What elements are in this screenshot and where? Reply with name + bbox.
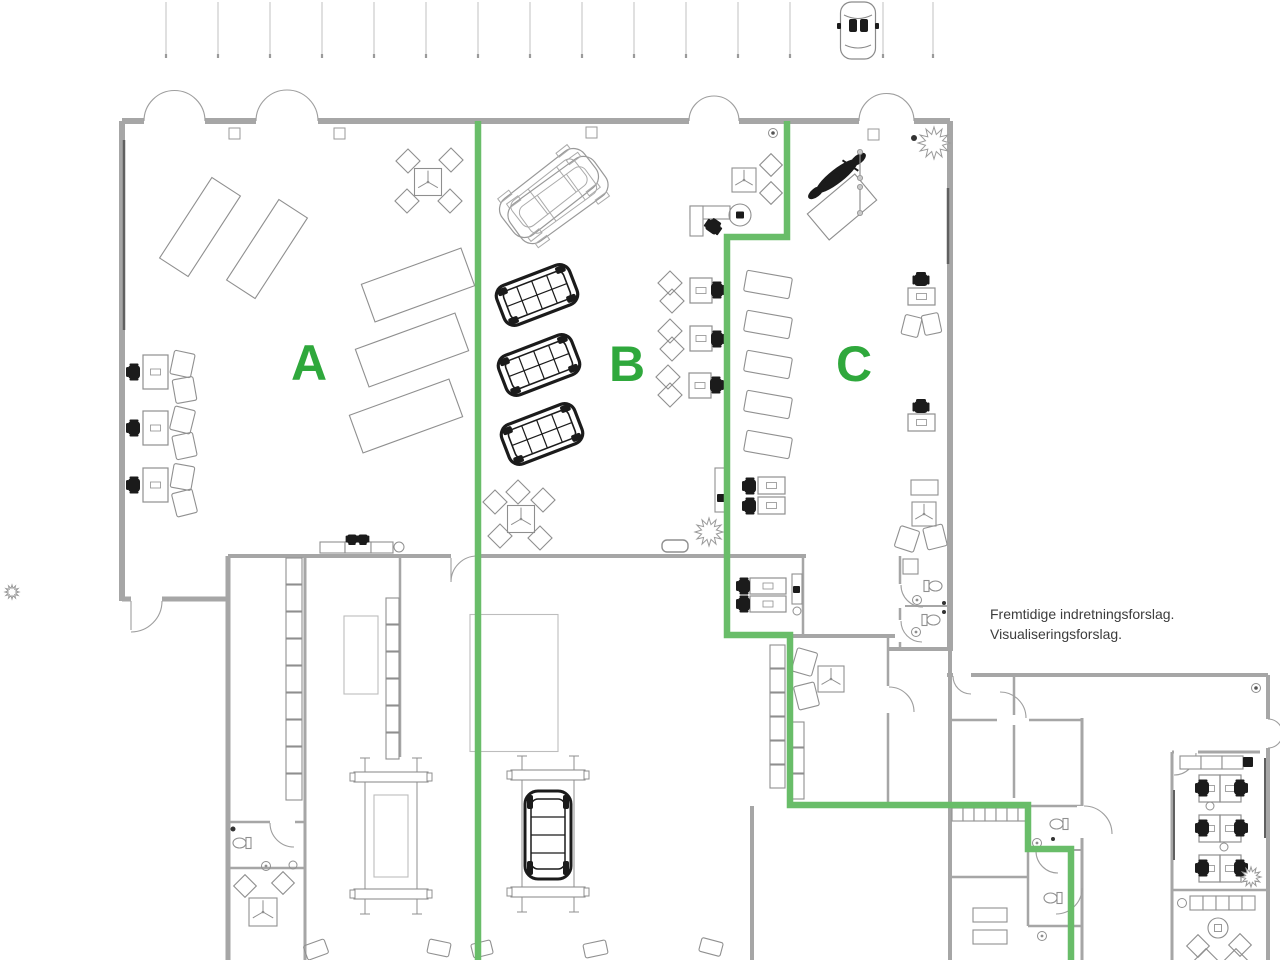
car-outline-icon bbox=[491, 140, 606, 247]
meeting-table-icon bbox=[912, 502, 936, 526]
chair-icon bbox=[439, 148, 463, 172]
cabinet-icon bbox=[386, 625, 399, 651]
cabinet-icon bbox=[973, 908, 1007, 922]
chair-icon bbox=[760, 154, 783, 177]
cabinet-icon bbox=[1222, 756, 1243, 769]
stool-icon bbox=[1178, 899, 1187, 908]
parking-area bbox=[166, 2, 933, 58]
cabinet-icon bbox=[286, 612, 302, 638]
cabinet-icon bbox=[952, 808, 963, 821]
desk-icon bbox=[143, 411, 168, 445]
sink-icon bbox=[1038, 932, 1047, 941]
display-platform bbox=[361, 248, 474, 322]
cabinet-icon bbox=[1203, 896, 1216, 910]
car-icon bbox=[493, 261, 581, 328]
small-plant-icon bbox=[769, 129, 778, 138]
parked-car-icon bbox=[837, 2, 879, 59]
cabinet-icon bbox=[770, 693, 785, 716]
cabinet-icon bbox=[985, 808, 996, 821]
zone-label-a: A bbox=[291, 334, 327, 392]
fixture-dot bbox=[942, 610, 946, 614]
cabinet-icon bbox=[286, 693, 302, 719]
desk-icon bbox=[908, 414, 935, 431]
office-chair-icon bbox=[126, 420, 140, 437]
cabinet-icon bbox=[386, 706, 399, 732]
lounge-chair-icon bbox=[744, 310, 793, 339]
office-chair-icon bbox=[742, 478, 756, 495]
cabinet-icon bbox=[386, 679, 399, 705]
display-platform bbox=[374, 795, 408, 877]
lounge-chair-icon bbox=[471, 940, 494, 958]
desk-icon bbox=[143, 468, 168, 502]
cabinet-icon bbox=[1201, 756, 1222, 769]
equipment-icon bbox=[1243, 757, 1253, 767]
fixture-dot bbox=[942, 601, 946, 605]
office-chair-icon bbox=[711, 282, 725, 299]
cabinet-icon bbox=[386, 652, 399, 678]
display-platform bbox=[227, 199, 308, 298]
office-chair-icon bbox=[126, 364, 140, 381]
floor-plan-drawing bbox=[0, 0, 1280, 960]
lounge-chair-icon bbox=[744, 390, 793, 419]
cabinet-icon bbox=[770, 645, 785, 668]
chair-icon bbox=[760, 182, 783, 205]
desk-icon bbox=[758, 477, 785, 494]
zone-label-b: B bbox=[609, 335, 645, 393]
car-icon bbox=[498, 400, 586, 467]
desk-icon bbox=[690, 278, 712, 303]
cabinet-icon bbox=[911, 480, 938, 495]
cabinet-icon bbox=[286, 585, 302, 611]
meeting-table-icon bbox=[415, 169, 442, 196]
cabinet-icon bbox=[1242, 896, 1255, 910]
plant-icon bbox=[695, 518, 723, 546]
desk-icon bbox=[758, 497, 785, 514]
desk-icon bbox=[750, 596, 786, 612]
display-platform bbox=[470, 615, 558, 752]
lounge-chair-icon bbox=[699, 937, 724, 956]
desk-icon bbox=[689, 373, 711, 398]
stool-icon bbox=[793, 607, 801, 615]
zone-boundaries bbox=[478, 121, 1071, 960]
car-icon bbox=[495, 331, 583, 398]
office-chair-icon bbox=[913, 399, 930, 413]
lounge-chair-icon bbox=[894, 525, 920, 552]
lounge-chair-icon bbox=[170, 350, 196, 378]
floor-plan: A B C Fremtidige indretningsforslag. Vis… bbox=[0, 0, 1280, 960]
lounge-chair-icon bbox=[171, 489, 197, 517]
cabinet-icon bbox=[286, 639, 302, 665]
lounge-chair-icon bbox=[170, 463, 195, 490]
office-chair-icon bbox=[711, 331, 725, 348]
car-on-lift-icon bbox=[525, 791, 571, 879]
display-platform bbox=[807, 174, 876, 240]
sink-icon bbox=[913, 596, 922, 605]
chair-icon bbox=[1187, 935, 1210, 958]
fixture-dot bbox=[911, 135, 917, 141]
desk-icon bbox=[908, 288, 935, 305]
cabinet-icon bbox=[1216, 896, 1229, 910]
cabinet-icon bbox=[963, 808, 974, 821]
annotation-line-2: Visualiseringsforslag. bbox=[990, 624, 1174, 644]
display-platform bbox=[344, 616, 378, 694]
lounge-chair-icon bbox=[169, 406, 195, 434]
lounge-chair-icon bbox=[921, 312, 942, 335]
car-outline-icon bbox=[500, 148, 616, 253]
round-table-icon bbox=[729, 204, 751, 226]
lounge-chair-icon bbox=[172, 432, 198, 460]
cabinet-icon bbox=[386, 733, 399, 759]
lounge-chair-icon bbox=[901, 314, 922, 338]
zone-label-c: C bbox=[836, 335, 872, 393]
chair-icon bbox=[1195, 949, 1218, 960]
display-platform bbox=[349, 379, 462, 453]
chair-icon bbox=[272, 872, 295, 895]
lounge-chair-icon bbox=[923, 524, 948, 550]
lounge-chair-icon bbox=[172, 376, 197, 403]
round-table-icon bbox=[1208, 918, 1228, 938]
lounge-chair-icon bbox=[427, 939, 451, 957]
walls bbox=[122, 121, 1268, 960]
toilet-icon bbox=[233, 838, 251, 849]
chair-icon bbox=[488, 524, 512, 548]
lounge-chair-icon bbox=[744, 270, 793, 299]
column-marker bbox=[586, 127, 597, 138]
cabinet-icon bbox=[770, 669, 785, 692]
toilet-icon bbox=[1044, 893, 1062, 904]
desk-icon bbox=[143, 355, 168, 389]
equipment-icon bbox=[793, 586, 800, 593]
display-stand-icon bbox=[857, 184, 862, 215]
chair-icon bbox=[396, 149, 420, 173]
cabinet-icon bbox=[770, 717, 785, 740]
lounge-chair-icon bbox=[583, 940, 608, 958]
toilet-icon bbox=[922, 615, 940, 626]
cabinet-icon bbox=[1180, 756, 1201, 769]
lounge-chair-icon bbox=[303, 939, 329, 960]
cabinet-icon bbox=[1190, 896, 1203, 910]
office-chair-icon bbox=[1195, 780, 1209, 797]
cabinet-icon bbox=[1229, 896, 1242, 910]
desk-icon bbox=[690, 326, 712, 351]
meeting-table-icon bbox=[732, 168, 756, 192]
cabinet-icon bbox=[792, 748, 804, 773]
office-chair-icon bbox=[126, 477, 140, 494]
stool-icon bbox=[394, 542, 404, 552]
display-stand-icon bbox=[857, 149, 862, 180]
stool-icon bbox=[1220, 843, 1228, 851]
chair-icon bbox=[506, 480, 530, 504]
fixture-dot bbox=[1051, 837, 1055, 841]
column-marker bbox=[334, 128, 345, 139]
cabinet-icon bbox=[286, 774, 302, 800]
display-platform bbox=[160, 177, 241, 276]
plant-icon bbox=[918, 127, 950, 159]
cabinet-icon bbox=[996, 808, 1007, 821]
cabinet-icon bbox=[974, 808, 985, 821]
furniture bbox=[5, 2, 1261, 960]
cabinet-icon bbox=[903, 559, 918, 574]
display-platform bbox=[355, 313, 468, 387]
cabinet-icon bbox=[770, 765, 785, 788]
cabinet-icon bbox=[371, 542, 393, 553]
stool-icon bbox=[1206, 802, 1214, 810]
cabinet-icon bbox=[1007, 808, 1018, 821]
office-chair-icon bbox=[1195, 820, 1209, 837]
chair-icon bbox=[528, 526, 552, 550]
fixture-dot bbox=[231, 827, 236, 832]
plant-icon bbox=[5, 585, 19, 599]
cabinet-icon bbox=[770, 741, 785, 764]
chair-icon bbox=[395, 189, 419, 213]
cabinet-icon bbox=[320, 542, 345, 553]
sink-icon bbox=[912, 628, 921, 637]
lounge-chair-icon bbox=[793, 682, 819, 710]
cabinet-icon bbox=[286, 666, 302, 692]
cabinet-icon bbox=[973, 930, 1007, 944]
office-chair-icon bbox=[736, 596, 750, 613]
cabinet-icon bbox=[386, 598, 399, 624]
office-chair-icon bbox=[1234, 780, 1248, 797]
meeting-table-icon bbox=[249, 898, 277, 926]
office-chair-icon bbox=[742, 498, 756, 515]
chair-icon bbox=[1225, 949, 1248, 960]
lounge-chair-icon bbox=[791, 648, 818, 677]
bench-icon bbox=[662, 540, 688, 552]
office-chair-icon bbox=[736, 578, 750, 595]
toilet-icon bbox=[924, 581, 942, 592]
plan-annotation: Fremtidige indretningsforslag. Visualise… bbox=[990, 604, 1174, 644]
cabinet-icon bbox=[286, 558, 302, 584]
car-lift-icon bbox=[350, 758, 432, 914]
lounge-chair-icon bbox=[744, 350, 793, 379]
column-marker bbox=[229, 128, 240, 139]
desk-icon bbox=[750, 578, 786, 594]
meeting-table-icon bbox=[508, 506, 535, 533]
car-lift-icon bbox=[507, 756, 589, 912]
toilet-icon bbox=[1050, 819, 1068, 830]
meeting-table-icon bbox=[818, 666, 844, 692]
cabinet-icon bbox=[792, 722, 804, 747]
cabinet-icon bbox=[690, 206, 703, 236]
office-chair-icon bbox=[913, 272, 930, 286]
cabinet-icon bbox=[286, 720, 302, 746]
lounge-chair-icon bbox=[744, 430, 793, 459]
column-marker bbox=[868, 129, 879, 140]
office-chair-icon bbox=[710, 377, 724, 394]
chair-icon bbox=[234, 875, 257, 898]
office-chair-icon bbox=[1234, 820, 1248, 837]
office-chair-icon bbox=[1195, 860, 1209, 877]
chair-icon bbox=[483, 490, 507, 514]
cabinet-icon bbox=[286, 747, 302, 773]
cabinet-icon bbox=[792, 774, 804, 799]
annotation-line-1: Fremtidige indretningsforslag. bbox=[990, 604, 1174, 624]
small-plant-icon bbox=[1252, 684, 1261, 693]
